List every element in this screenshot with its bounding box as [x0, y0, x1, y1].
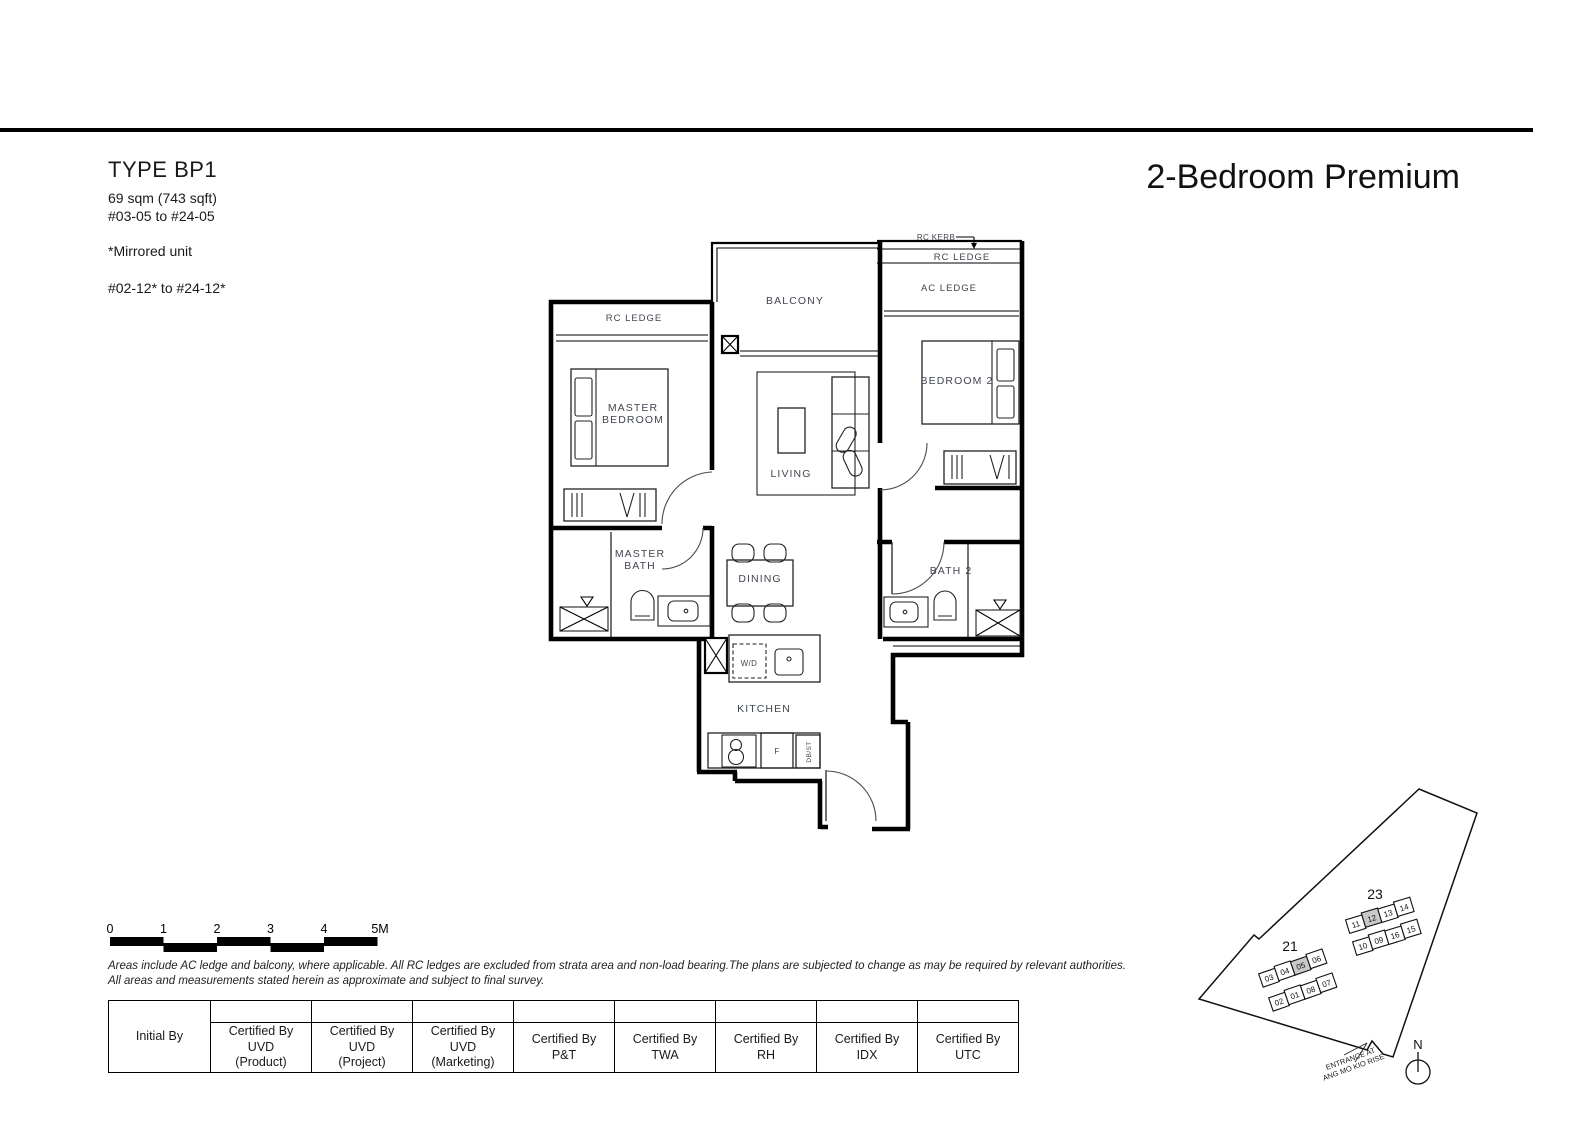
floor-plan-page: TYPE BP1 69 sqm (743 sqft) #03-05 to #24… [0, 0, 1590, 1123]
north-arrow: N [1406, 1037, 1430, 1084]
scale-bar: 0 1 2 3 4 5M [107, 922, 389, 952]
site-plan: 21 23 11 12 13 14 10 09 16 [1199, 789, 1477, 1084]
table-col-uvd-marketing: Certified By UVD (Marketing) [412, 1001, 513, 1072]
room-label-master-bath-1: MASTER [615, 548, 665, 560]
scale-tick-5: 5M [371, 922, 388, 936]
signature-cell [817, 1001, 917, 1023]
room-label-master-bath-2: BATH [624, 560, 656, 572]
master-bedroom-door-arc [662, 472, 712, 524]
room-label-rc-kerb: RC KERB [917, 233, 955, 242]
disclaimer-line-1: Areas include AC ledge and balcony, wher… [108, 959, 1208, 974]
block-23-label: 23 [1367, 886, 1383, 902]
block-21-label: 21 [1282, 938, 1298, 954]
scale-tick-4: 4 [321, 922, 328, 936]
room-label-kitchen: KITCHEN [737, 703, 791, 715]
table-col-initial-by: Initial By [109, 1001, 210, 1072]
scale-tick-2: 2 [214, 922, 221, 936]
north-label: N [1413, 1037, 1422, 1052]
room-label-living: LIVING [770, 468, 811, 480]
certification-table: Initial By Certified By UVD (Product) Ce… [108, 1000, 1019, 1073]
room-label-rc-ledge-right: RC LEDGE [934, 252, 991, 263]
entrance-annotation: ENTRANCE AT ANG MO KIO RISE [1318, 1043, 1385, 1083]
room-label-balcony: BALCONY [766, 295, 824, 307]
room-label-master-bedroom-1: MASTER [608, 402, 658, 414]
scale-tick-1: 1 [160, 922, 167, 936]
table-col-idx: Certified By IDX [816, 1001, 917, 1072]
walls [551, 241, 1024, 829]
room-label-dining: DINING [738, 573, 781, 585]
room-label-ac-ledge: AC LEDGE [921, 283, 977, 294]
signature-cell [413, 1001, 513, 1023]
room-label-master-bedroom-2: BEDROOM [602, 414, 664, 426]
room-label-bedroom2: BEDROOM 2 [921, 375, 994, 387]
column-kitchen [705, 638, 727, 673]
table-col-twa: Certified By TWA [614, 1001, 715, 1072]
appliance-label-fridge: F [774, 747, 779, 756]
appliance-label-wd: W/D [741, 659, 758, 668]
table-col-uvd-product: Certified By UVD (Product) [210, 1001, 311, 1072]
bedroom2-window [884, 311, 1019, 316]
appliance-label-dbst: DB/ST [806, 741, 813, 762]
room-label-bath2: BATH 2 [930, 565, 973, 577]
column-balcony [722, 336, 738, 353]
signature-cell [312, 1001, 412, 1023]
master-bath-door-arc [662, 528, 703, 569]
table-col-utc: Certified By UTC [917, 1001, 1018, 1072]
room-label-rc-ledge-left: RC LEDGE [606, 313, 663, 324]
bedroom2-door-arc [880, 443, 927, 490]
bath2-fixtures [884, 542, 1020, 637]
bedroom2-wardrobe [944, 451, 1016, 484]
signature-cell [918, 1001, 1018, 1023]
table-col-rh: Certified By RH [715, 1001, 816, 1072]
disclaimer-line-2: All areas and measurements stated herein… [108, 974, 1208, 989]
entry-door-arc [826, 771, 876, 821]
site-boundary [1199, 789, 1477, 1057]
drawings-canvas: RC KERB RC LEDGE AC LEDGE BALCONY RC LED… [0, 0, 1590, 1123]
master-wardrobe [564, 489, 656, 521]
balcony-parapet-outer [712, 243, 878, 302]
table-col-uvd-project: Certified By UVD (Project) [311, 1001, 412, 1072]
floor-plan-drawing: RC KERB RC LEDGE AC LEDGE BALCONY RC LED… [551, 233, 1024, 829]
scale-tick-0: 0 [107, 922, 114, 936]
master-bedroom-window [556, 335, 708, 341]
scale-tick-3: 3 [267, 922, 274, 936]
balcony-slider [740, 351, 878, 356]
rc-kerb-leader [956, 237, 977, 249]
signature-cell [615, 1001, 715, 1023]
signature-cell [211, 1001, 311, 1023]
disclaimer: Areas include AC ledge and balcony, wher… [108, 959, 1208, 989]
table-col-pt: Certified By P&T [513, 1001, 614, 1072]
balcony-parapet-inner [717, 248, 878, 302]
signature-cell [514, 1001, 614, 1023]
signature-cell [716, 1001, 816, 1023]
